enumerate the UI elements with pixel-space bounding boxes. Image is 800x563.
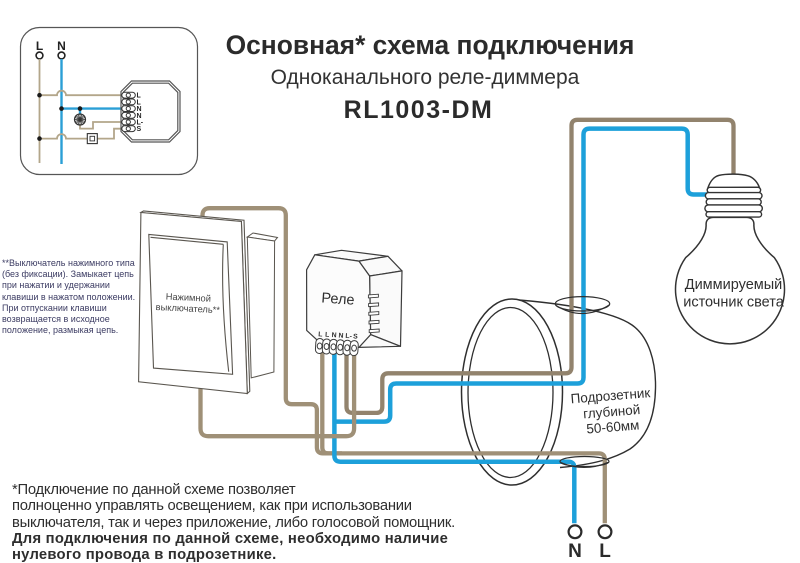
- svg-text:источник света: источник света: [683, 295, 784, 311]
- svg-text:Диммируемый: Диммируемый: [685, 277, 783, 293]
- svg-text:L: L: [325, 332, 330, 339]
- svg-text:L: L: [599, 541, 611, 562]
- svg-text:N: N: [338, 332, 343, 339]
- svg-text:Реле: Реле: [321, 290, 355, 308]
- svg-text:N: N: [331, 332, 336, 339]
- svg-text:N: N: [57, 39, 66, 53]
- svg-text:N: N: [568, 541, 582, 562]
- svg-text:S: S: [137, 126, 142, 133]
- svg-text:L: L: [36, 39, 43, 53]
- svg-text:L-: L-: [345, 333, 353, 340]
- svg-text:S: S: [353, 333, 358, 340]
- svg-text:L: L: [318, 331, 323, 338]
